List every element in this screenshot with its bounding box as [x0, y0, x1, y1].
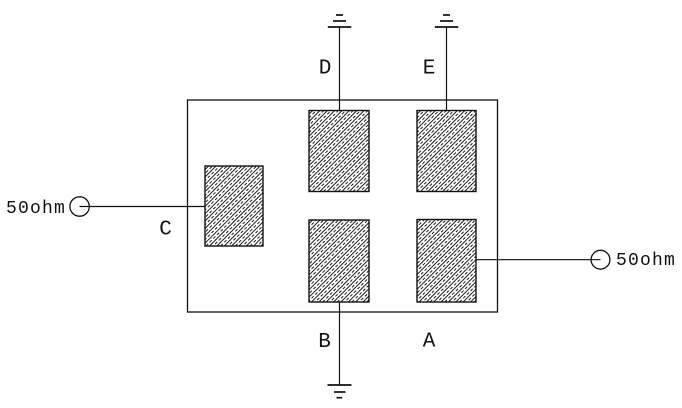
- svg-text:B: B: [318, 331, 331, 354]
- svg-text:E: E: [423, 58, 436, 81]
- svg-text:50ohm: 50ohm: [6, 199, 66, 219]
- svg-text:50ohm: 50ohm: [616, 251, 676, 271]
- svg-text:A: A: [423, 331, 436, 354]
- svg-text:D: D: [319, 58, 332, 81]
- svg-text:C: C: [159, 219, 172, 242]
